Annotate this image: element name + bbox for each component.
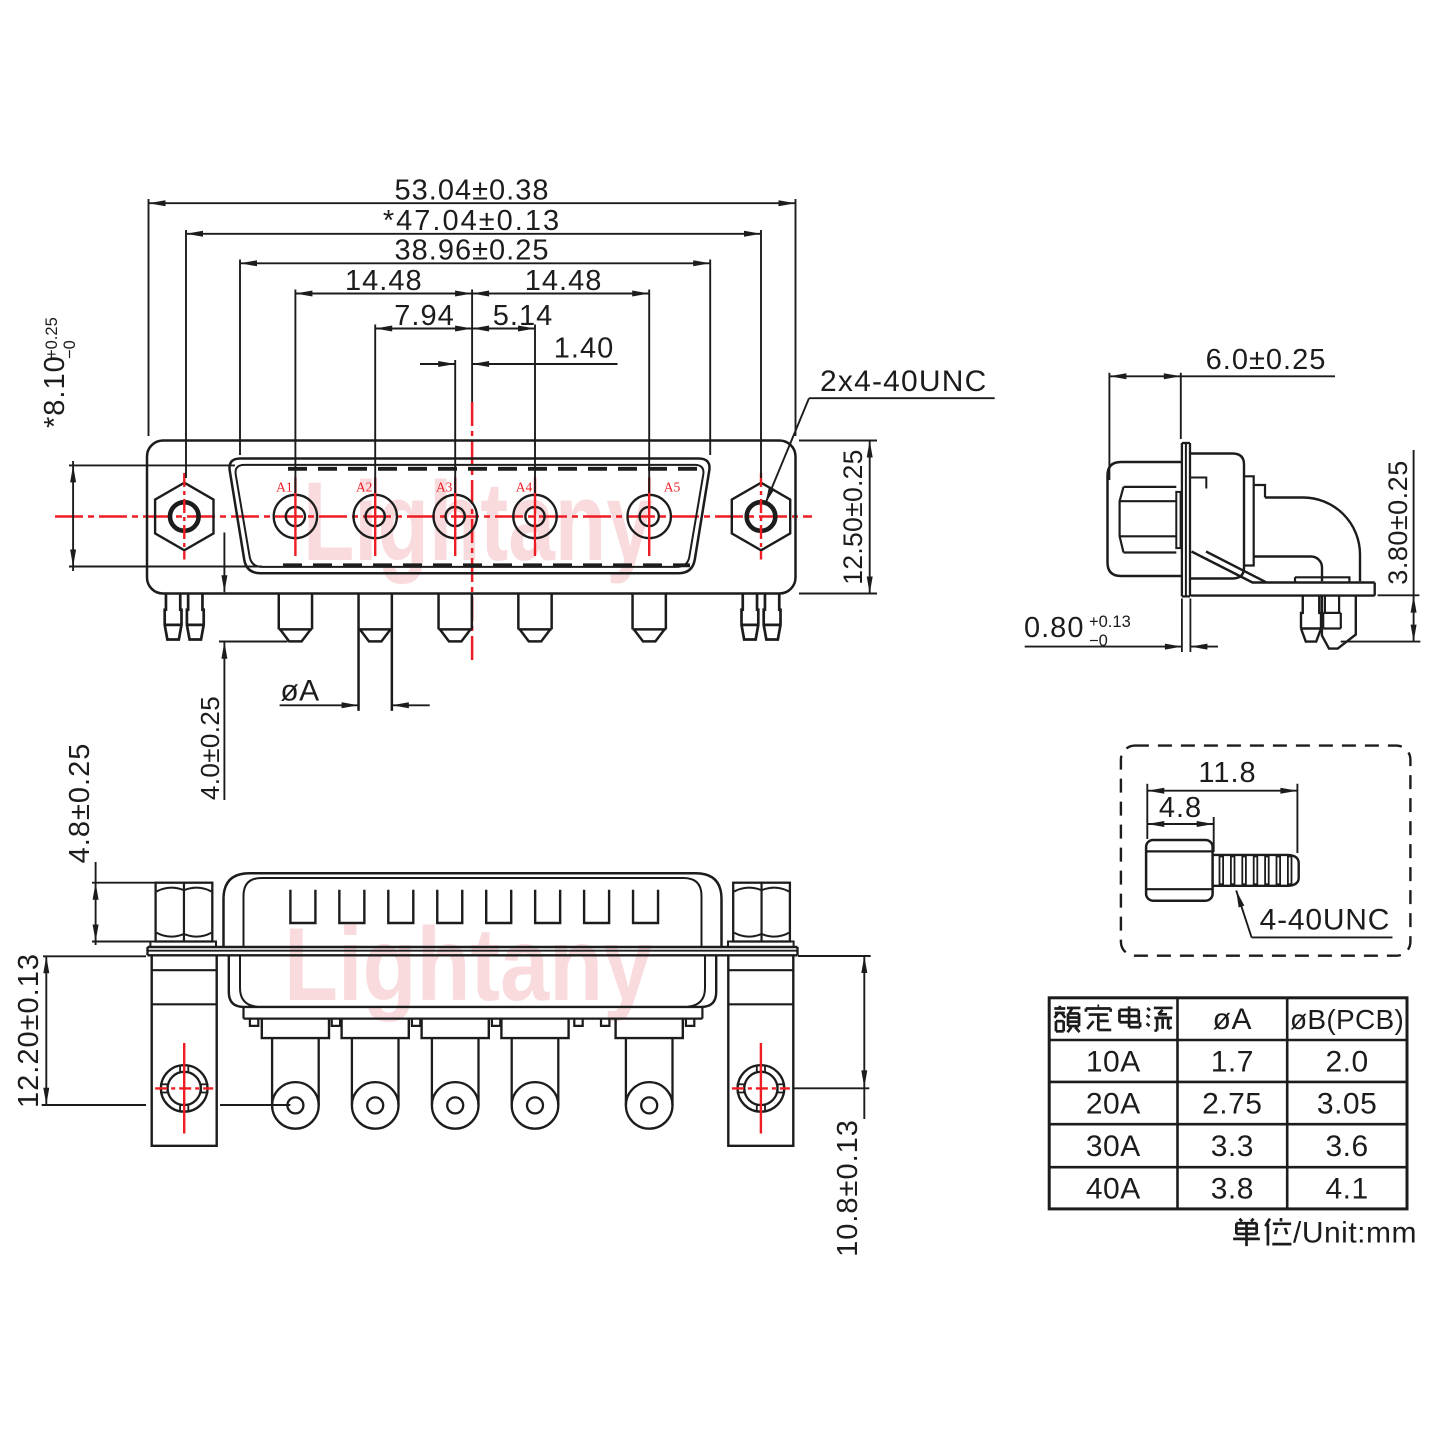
svg-text:/Unit:mm: /Unit:mm xyxy=(1293,1217,1417,1250)
svg-text:1.40: 1.40 xyxy=(554,333,614,365)
svg-text:53.04±0.38: 53.04±0.38 xyxy=(395,175,550,207)
svg-text:10A: 10A xyxy=(1086,1046,1141,1079)
svg-text:A3: A3 xyxy=(436,480,453,495)
svg-text:38.96±0.25: 38.96±0.25 xyxy=(395,235,550,267)
svg-text:20A: 20A xyxy=(1086,1088,1141,1121)
svg-text:1.7: 1.7 xyxy=(1211,1046,1254,1079)
svg-text:A5: A5 xyxy=(664,480,681,495)
svg-text:40A: 40A xyxy=(1086,1173,1141,1206)
svg-text:5.14: 5.14 xyxy=(493,300,553,332)
svg-text:+0.13: +0.13 xyxy=(1089,613,1131,631)
svg-text:4.8: 4.8 xyxy=(1159,792,1202,824)
svg-text:2x4-40UNC: 2x4-40UNC xyxy=(820,365,988,398)
svg-text:3.8: 3.8 xyxy=(1211,1173,1254,1206)
svg-text:øB(PCB): øB(PCB) xyxy=(1290,1004,1404,1035)
svg-text:3.6: 3.6 xyxy=(1325,1130,1368,1163)
svg-text:12.50±0.25: 12.50±0.25 xyxy=(838,449,868,584)
svg-text:0.80: 0.80 xyxy=(1024,612,1084,644)
svg-text:2.75: 2.75 xyxy=(1202,1088,1262,1121)
svg-text:*47.04±0.13: *47.04±0.13 xyxy=(383,205,561,237)
svg-text:A4: A4 xyxy=(516,480,533,495)
svg-text:Lightany: Lightany xyxy=(284,907,653,1022)
svg-text:10.8±0.13: 10.8±0.13 xyxy=(832,1119,864,1257)
svg-text:4.1: 4.1 xyxy=(1325,1173,1368,1206)
svg-text:3.05: 3.05 xyxy=(1317,1088,1377,1121)
svg-text:A1: A1 xyxy=(276,480,293,495)
svg-text:4-40UNC: 4-40UNC xyxy=(1260,904,1391,937)
svg-text:14.48: 14.48 xyxy=(345,265,423,297)
svg-text:7.94: 7.94 xyxy=(394,300,454,332)
svg-text:A2: A2 xyxy=(356,480,373,495)
svg-text:14.48: 14.48 xyxy=(525,265,603,297)
svg-text:6.0±0.25: 6.0±0.25 xyxy=(1206,344,1327,376)
svg-text:30A: 30A xyxy=(1086,1130,1141,1163)
svg-text:4.0±0.25: 4.0±0.25 xyxy=(195,696,225,800)
svg-text:12.20±0.13: 12.20±0.13 xyxy=(13,953,45,1108)
svg-text:3.80±0.25: 3.80±0.25 xyxy=(1383,460,1413,584)
svg-text:øA: øA xyxy=(280,675,319,708)
svg-text:11.8: 11.8 xyxy=(1198,757,1256,789)
svg-text:2.0: 2.0 xyxy=(1325,1046,1368,1079)
svg-text:4.8±0.25: 4.8±0.25 xyxy=(64,743,96,864)
svg-text:øA: øA xyxy=(1213,1003,1252,1036)
svg-text:*8.10: *8.10 xyxy=(39,355,71,428)
svg-text:+0.25: +0.25 xyxy=(43,317,61,359)
svg-text:3.3: 3.3 xyxy=(1211,1130,1254,1163)
svg-text:−0: −0 xyxy=(61,340,79,359)
